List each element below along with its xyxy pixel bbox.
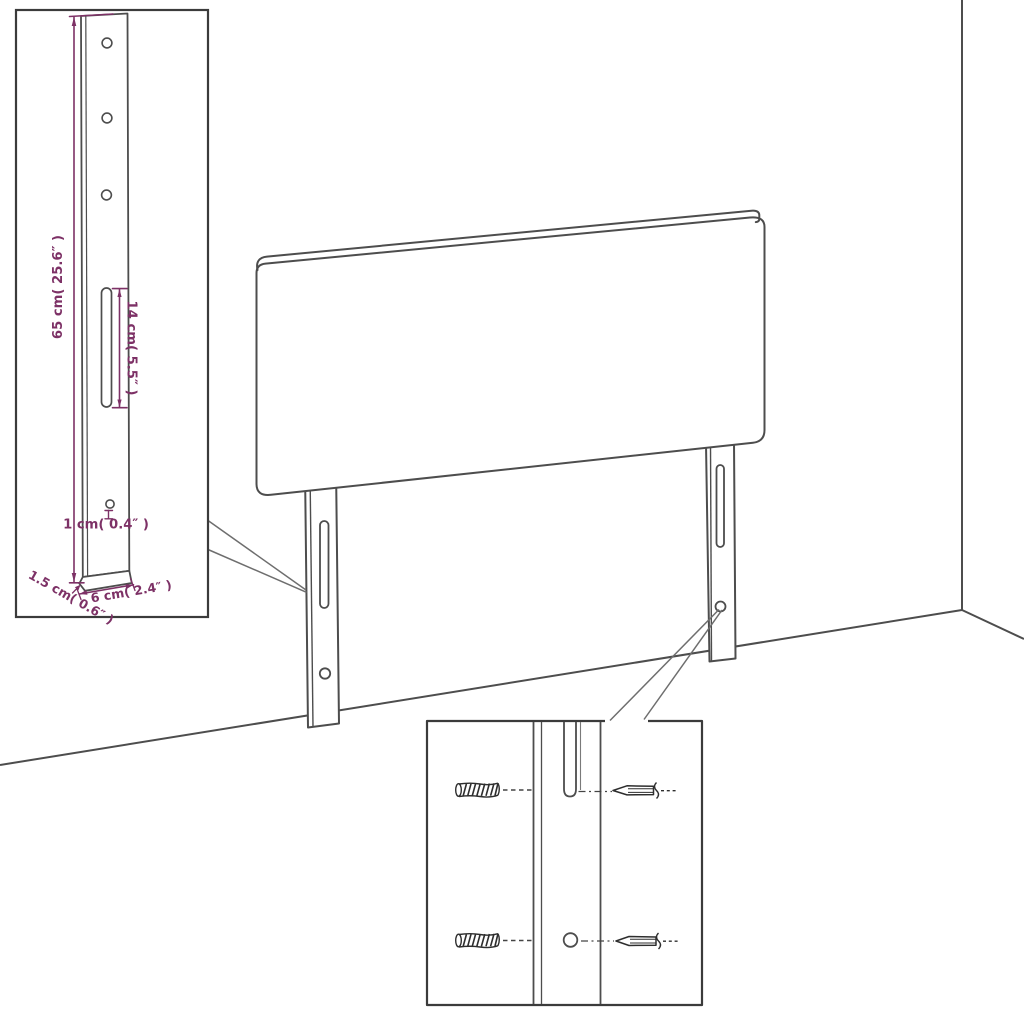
headboard-panel-face [257, 217, 765, 495]
bracket-small-hole [106, 500, 114, 508]
hardware-callout-line-right [644, 610, 722, 720]
bracket-hole-middle [102, 113, 112, 123]
diagram-stage: 65 cm( 25.6″ ) 14 cm( 5.5″ ) 1 cm( 0.4″ … [0, 0, 1024, 1024]
right-leg [706, 442, 736, 662]
left-leg-slot [320, 521, 329, 608]
right-leg-slot [717, 465, 725, 547]
diagram-canvas: 65 cm( 25.6″ ) 14 cm( 5.5″ ) 1 cm( 0.4″ … [0, 0, 1024, 1024]
left-leg-hole [320, 668, 330, 678]
label-leg-height: 65 cm( 25.6″ ) [51, 235, 66, 339]
bracket-hole-lower [102, 190, 112, 200]
headboard-panel [257, 211, 765, 495]
floor-line-right [962, 610, 1024, 639]
bracket-hole-top [102, 38, 112, 48]
label-hole-diameter: 1 cm( 0.4″ ) [63, 518, 149, 533]
bracket-callout-lines [208, 521, 307, 593]
label-slot-length: 14 cm( 5.5″ ) [124, 301, 139, 396]
bracket-slot [102, 288, 112, 407]
right-leg-side-edge-line [711, 444, 712, 661]
bracket-detail-inset: 65 cm( 25.6″ ) 14 cm( 5.5″ ) 1 cm( 0.4″ … [16, 10, 208, 627]
hardware-detail-inset [427, 721, 702, 1005]
right-leg-hole [716, 602, 726, 612]
left-leg [305, 466, 339, 728]
